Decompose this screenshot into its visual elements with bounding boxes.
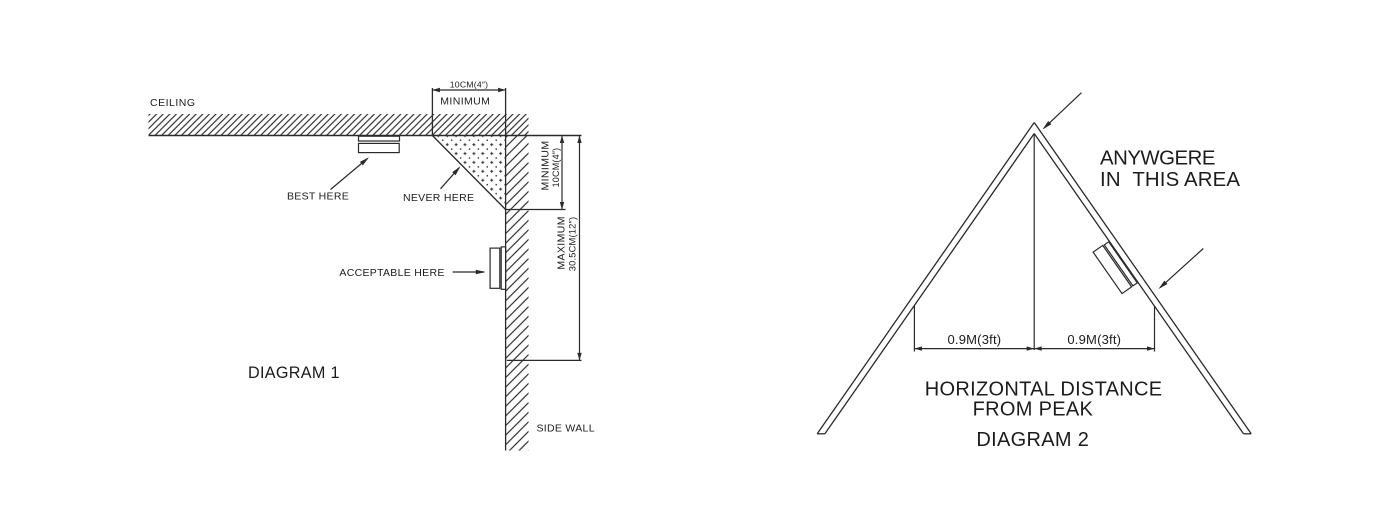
svg-text:BEST HERE: BEST HERE [287,191,349,203]
svg-text:MINIMUM: MINIMUM [539,140,551,190]
svg-text:MAXIMUM: MAXIMUM [555,216,567,270]
svg-text:SIDE WALL: SIDE WALL [537,423,595,435]
svg-text:30.5CM(12″): 30.5CM(12″) [568,217,578,272]
svg-text:HORIZONTAL DISTANCE: HORIZONTAL DISTANCE [925,378,1163,400]
svg-text:ANYWGERE: ANYWGERE [1100,148,1215,170]
svg-text:0.9M(3ft): 0.9M(3ft) [1067,332,1121,347]
svg-text:IN THIS AREA: IN THIS AREA [1100,169,1240,191]
svg-text:CEILING: CEILING [150,97,196,109]
svg-text:10CM(4″): 10CM(4″) [551,148,561,188]
svg-text:MINIMUM: MINIMUM [440,95,490,107]
svg-text:NEVER HERE: NEVER HERE [403,192,474,204]
svg-text:FROM PEAK: FROM PEAK [973,398,1094,420]
svg-text:10CM(4″): 10CM(4″) [450,79,488,89]
svg-text:ACCEPTABLE HERE: ACCEPTABLE HERE [339,267,444,279]
svg-text:DIAGRAM 1: DIAGRAM 1 [248,364,340,382]
svg-text:0.9M(3ft): 0.9M(3ft) [947,332,1001,347]
svg-text:DIAGRAM 2: DIAGRAM 2 [976,429,1089,451]
